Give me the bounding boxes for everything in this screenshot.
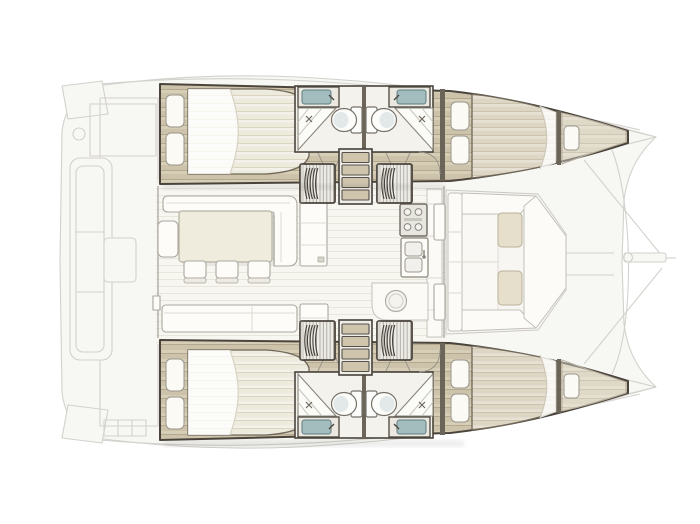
aft-door-handle: [153, 296, 160, 310]
dining-chair: [216, 261, 238, 283]
stove-knob-strip: [404, 218, 422, 221]
aft-companionway-stairs: [300, 164, 335, 203]
sink-basin: [405, 242, 422, 256]
toilet-bowl: [334, 112, 349, 128]
seat-cushion: [498, 271, 522, 305]
hull-wall-shadow: [162, 184, 444, 190]
hull-outer-shadow: [164, 440, 464, 447]
catamaran-floorplan: [0, 0, 700, 524]
forward-cabin-bulkhead: [440, 89, 445, 181]
pillow: [166, 95, 184, 127]
saloon: [153, 180, 446, 344]
seat-cushion: [498, 213, 522, 247]
forward-companionway-stairs: [377, 164, 412, 203]
stove-burner-icon: [415, 209, 422, 216]
pillow: [451, 136, 469, 164]
forward-cockpit: [446, 190, 566, 334]
faucet-icon: [422, 255, 426, 259]
sideboard: [300, 201, 327, 266]
forepeak-cushion: [564, 126, 579, 150]
forepeak-bulkhead: [557, 111, 561, 165]
stool: [158, 221, 178, 257]
center-steps: [339, 149, 372, 204]
dining-chair: [248, 261, 270, 283]
pillow: [166, 133, 184, 165]
sideboard-handle: [318, 257, 324, 262]
vanity-sink: [397, 90, 426, 104]
vanity-sink: [302, 90, 331, 104]
toilet-bowl: [380, 112, 395, 128]
stove-burner-icon: [404, 224, 411, 231]
floorplan-canvas: [0, 0, 700, 524]
bowsprit: [624, 253, 666, 262]
transom-step-bottom: [62, 405, 108, 443]
aft-bench: [162, 305, 297, 332]
sink-basin: [405, 258, 422, 272]
pillow: [451, 102, 469, 130]
berth-duvet: [188, 89, 238, 174]
forward-door-panel: [434, 204, 445, 240]
stove-burner-icon: [415, 224, 422, 231]
dining-table: [179, 211, 272, 262]
aft-table: [104, 238, 136, 282]
dining-chair: [184, 261, 206, 283]
transom-step-top: [62, 81, 108, 119]
stove-burner-icon: [404, 209, 411, 216]
forward-door-panel: [434, 284, 445, 320]
